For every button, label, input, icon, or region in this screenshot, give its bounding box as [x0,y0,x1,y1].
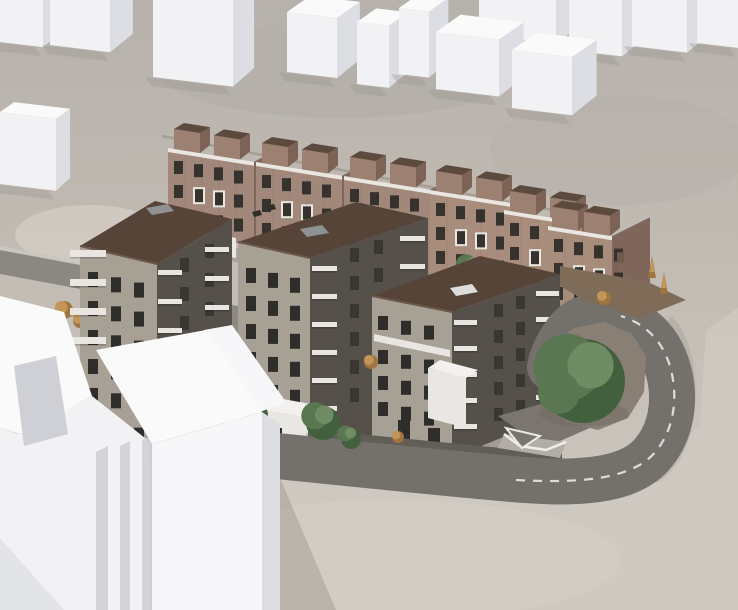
window [111,277,121,292]
balcony-underside [158,333,182,335]
window [134,312,144,327]
balcony-underside [454,351,477,353]
window [180,316,189,330]
balcony-slab [205,247,229,252]
balcony-underside [454,429,477,431]
window [234,219,243,232]
facade-recess [142,436,152,610]
balcony-underside [400,241,425,243]
window [174,185,183,198]
canopy-light [345,428,356,439]
window [494,304,503,317]
window [350,276,359,290]
window [174,161,183,174]
window [496,237,505,250]
window [350,332,359,346]
block-front [0,0,43,47]
balcony-slab [158,270,182,275]
window [290,362,300,377]
window [234,171,243,184]
window [516,322,525,335]
balcony-underside [312,355,337,357]
window [401,381,411,395]
facade-recess [96,446,108,610]
window [374,240,383,254]
balcony-underside [454,325,477,327]
balcony-underside [158,304,182,306]
facade-recess [120,441,130,610]
block-front [399,8,429,78]
balcony-underside [70,315,106,317]
balcony-slab [312,322,337,327]
window [378,316,388,330]
side-window [617,252,624,263]
window [350,360,359,374]
balcony-slab [312,266,337,271]
balcony-slab [312,378,337,383]
window [111,306,121,321]
window [424,326,434,340]
roof-box-front [476,177,502,201]
window [401,407,411,421]
window [378,376,388,390]
architectural-rendering [0,0,738,610]
canopy-light [392,431,400,439]
roof-box-front [436,171,462,195]
balcony-slab [400,264,425,269]
balcony-slab [205,276,229,281]
balcony-slab [536,291,559,296]
window [401,355,411,369]
balcony-slab [454,320,477,325]
window [554,239,563,252]
canopy [538,372,580,414]
block-side [56,109,70,191]
window [134,283,144,298]
roof-box-front [350,157,376,181]
site-plan-rendering [0,0,738,610]
window [378,350,388,364]
window [262,175,271,188]
block-front [632,0,687,53]
window [350,248,359,262]
window [494,330,503,343]
roof-box-front [302,149,328,173]
window [510,247,519,260]
balcony-underside [312,327,337,329]
window [494,408,503,421]
window [246,324,256,339]
window [350,304,359,318]
roof-box-front [262,143,288,167]
roof-box-front [552,207,578,231]
context-block [0,102,70,200]
window [268,301,278,316]
block-front [512,50,572,115]
window [290,278,300,293]
canopy-light [364,355,374,365]
balcony-slab [158,299,182,304]
balcony-underside [312,383,337,385]
window [268,329,278,344]
canopy-light [597,291,607,301]
block-front [287,12,337,78]
block-front [50,0,110,52]
balcony-slab [454,346,477,351]
autumn-tree-icon [597,291,611,305]
balcony-underside [205,310,229,312]
roof-box-front [214,135,240,159]
window [494,356,503,369]
balcony-underside [400,269,425,271]
window [290,334,300,349]
roof-box-front [174,129,200,153]
window [180,258,189,272]
window [378,402,388,416]
window [180,287,189,301]
block-front [153,0,233,87]
window [246,268,256,283]
window [374,268,383,282]
window [268,357,278,372]
balcony-underside [158,275,182,277]
balcony-slab [312,350,337,355]
window [496,213,505,226]
window [350,189,359,202]
balcony-underside [205,252,229,254]
window [516,374,525,387]
window [516,348,525,361]
balcony-slab [158,328,182,333]
block-front [697,0,738,48]
autumn-tree-icon [364,355,378,369]
context-block [145,0,254,96]
roof-box-front [510,191,536,215]
window [516,296,525,309]
balcony-slab [205,305,229,310]
window [246,296,256,311]
window [436,203,445,216]
balcony-underside [312,271,337,273]
balcony-slab [70,337,106,344]
balcony-slab [70,308,106,315]
window [111,393,121,408]
balcony-slab [70,279,106,286]
balcony-underside [536,296,559,298]
window [290,306,300,321]
balcony-underside [70,344,106,346]
window [268,273,278,288]
window [436,227,445,240]
roof-box-front [390,163,416,187]
balcony-underside [205,281,229,283]
block-front [0,112,56,191]
balcony-underside [70,257,106,259]
autumn-tree-icon [392,431,404,443]
foreground-block-side [262,412,280,610]
window [234,195,243,208]
window [510,223,519,236]
window [322,185,331,198]
balcony-slab [400,236,425,241]
window [401,321,411,335]
window [350,388,359,402]
window [410,199,419,212]
street-low-volume [428,368,466,428]
window [88,359,98,374]
balcony-slab [312,294,337,299]
block-front [357,22,389,88]
roof-box-front [584,212,610,236]
balcony-underside [312,299,337,301]
window [494,382,503,395]
canopy-light [315,406,334,425]
balcony-slab [70,250,106,257]
balcony-underside [70,286,106,288]
window [436,251,445,264]
foreground-block-front [152,412,262,610]
block-front [436,32,499,97]
